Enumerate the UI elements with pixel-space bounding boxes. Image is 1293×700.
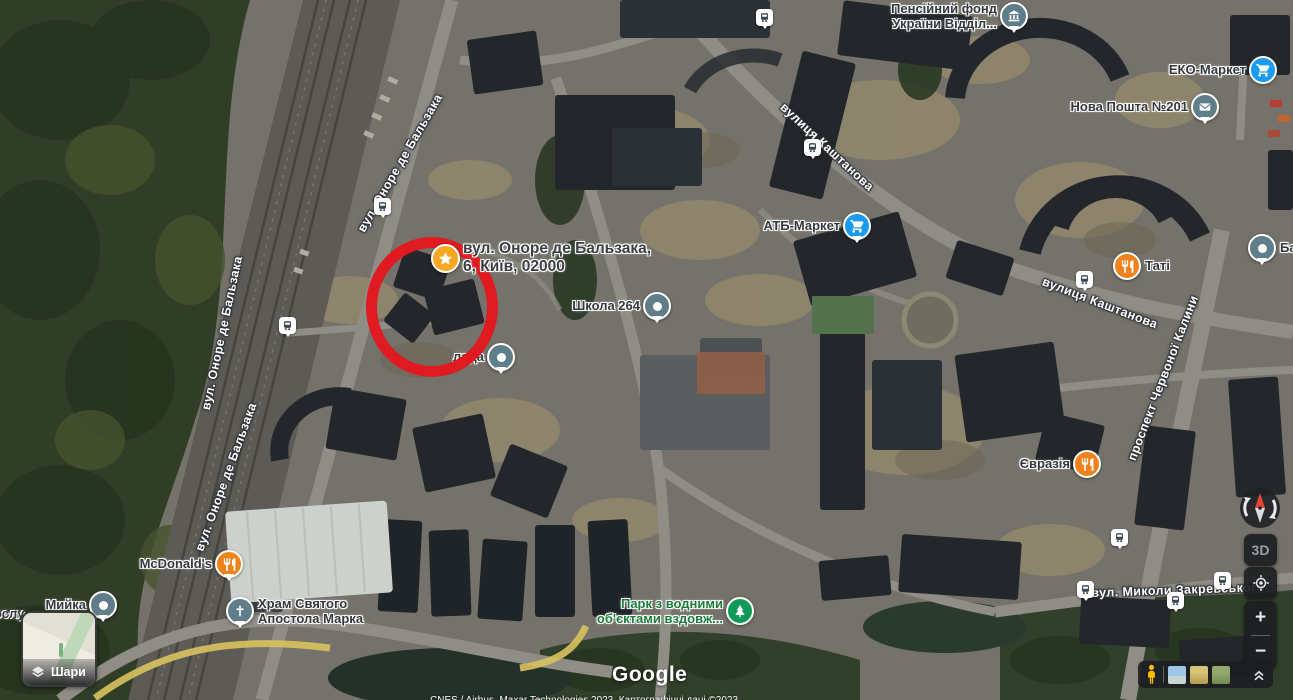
poi-label[interactable]: Мийка: [45, 597, 86, 612]
google-maps-satellite-view: вул. Оноре де Бальзака вул. Оноре де Бал…: [0, 0, 1293, 700]
poi-label[interactable]: Храм СвятогоАпостола Марка: [258, 596, 363, 626]
poi-label[interactable]: ЕКО-Маркет: [1169, 62, 1246, 77]
church-icon[interactable]: [226, 597, 254, 625]
poi-label[interactable]: Парк з воднимиоб'єктами вздовж...: [597, 596, 723, 626]
my-location-button[interactable]: [1244, 567, 1277, 599]
my-location-icon: [1252, 574, 1270, 592]
bus-stop-icon[interactable]: [756, 9, 773, 26]
park-tree-icon[interactable]: [726, 597, 754, 625]
bar-divider: [1163, 666, 1164, 683]
bus-stop-icon[interactable]: [1111, 529, 1128, 546]
shopping-cart-icon[interactable]: [1249, 56, 1277, 84]
google-logo[interactable]: Google: [612, 663, 687, 687]
restaurant-icon[interactable]: [215, 550, 243, 578]
poi-label[interactable]: McDonald's: [140, 556, 212, 571]
bus-stop-icon[interactable]: [1076, 271, 1093, 288]
photo-thumbnail[interactable]: [1212, 666, 1230, 684]
compass-control[interactable]: [1238, 485, 1282, 529]
poi-label[interactable]: Пенсійний фондУкраїни Відділ...: [891, 1, 997, 31]
poi-label[interactable]: Школа 264: [572, 298, 640, 313]
star-icon[interactable]: [431, 244, 460, 273]
address-label[interactable]: вул. Оноре де Бальзака,6, Київ, 02000: [463, 240, 651, 276]
3d-view-button[interactable]: 3D: [1244, 534, 1277, 566]
bank-icon[interactable]: [1000, 2, 1028, 30]
place-pin-icon[interactable]: [1248, 234, 1276, 262]
restaurant-icon[interactable]: [1073, 450, 1101, 478]
zoom-in-button[interactable]: +: [1244, 601, 1277, 635]
poi-label[interactable]: АТБ-Маркет: [764, 218, 840, 233]
mail-icon[interactable]: [1191, 93, 1219, 121]
imagery-bar: [1138, 661, 1273, 688]
layers-icon: [31, 665, 45, 679]
bus-stop-icon[interactable]: [1214, 572, 1231, 589]
bus-stop-icon[interactable]: [279, 317, 296, 334]
bus-stop-icon[interactable]: [374, 198, 391, 215]
collapse-bar-button[interactable]: [1251, 667, 1267, 683]
photo-thumbnail[interactable]: [1168, 666, 1186, 684]
photo-thumbnail[interactable]: [1190, 666, 1208, 684]
layers-button-label: Шари: [51, 665, 86, 679]
compass-icon: [1238, 485, 1282, 529]
pegman-icon[interactable]: [1144, 664, 1159, 685]
layers-button[interactable]: Шари: [21, 611, 97, 687]
bus-stop-icon[interactable]: [1167, 592, 1184, 609]
restaurant-icon[interactable]: [1113, 252, 1141, 280]
poi-label[interactable]: Ба: [1280, 240, 1293, 255]
bus-stop-icon[interactable]: [1077, 581, 1094, 598]
poi-label[interactable]: Нова Пошта №201: [1070, 99, 1188, 114]
poi-label[interactable]: Євразія: [1020, 456, 1070, 471]
map-attribution: CNES / Airbus, Maxar Technologies 2023, …: [430, 695, 738, 700]
zoom-control: + −: [1244, 601, 1277, 669]
place-pin-icon[interactable]: [487, 343, 515, 371]
chevron-double-up-icon: [1251, 667, 1267, 683]
poi-label[interactable]: Таті: [1145, 258, 1170, 273]
bus-stop-icon[interactable]: [804, 139, 821, 156]
place-pin-icon[interactable]: [643, 292, 671, 320]
shopping-cart-icon[interactable]: [843, 212, 871, 240]
